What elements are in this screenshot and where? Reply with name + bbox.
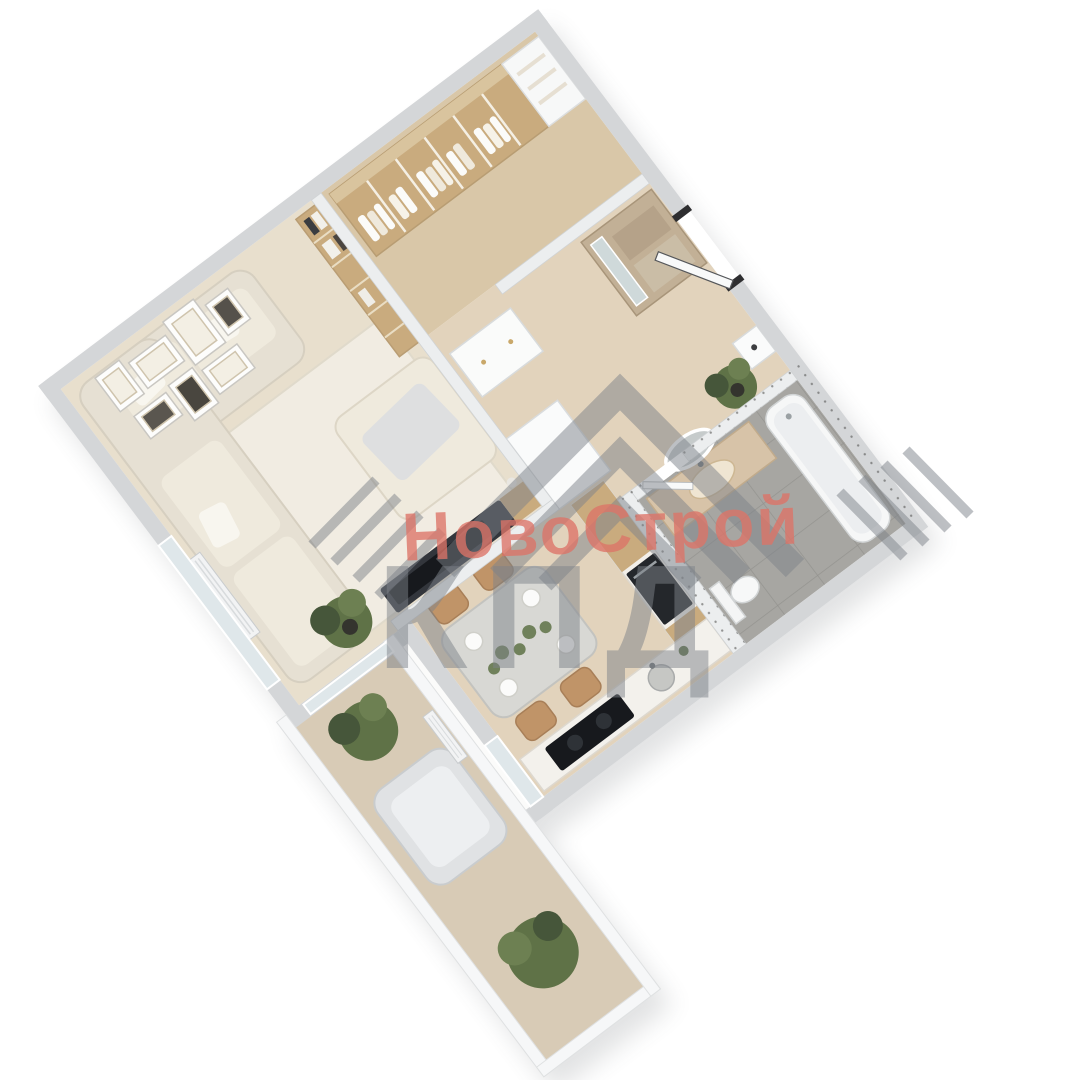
watermark-company-text: КПД: [377, 535, 727, 700]
watermark: НовоСтрой КПД: [0, 0, 1080, 1080]
logo-hatch-right: [840, 450, 970, 557]
floorplan-render: НовоСтрой КПД: [0, 0, 1080, 1080]
